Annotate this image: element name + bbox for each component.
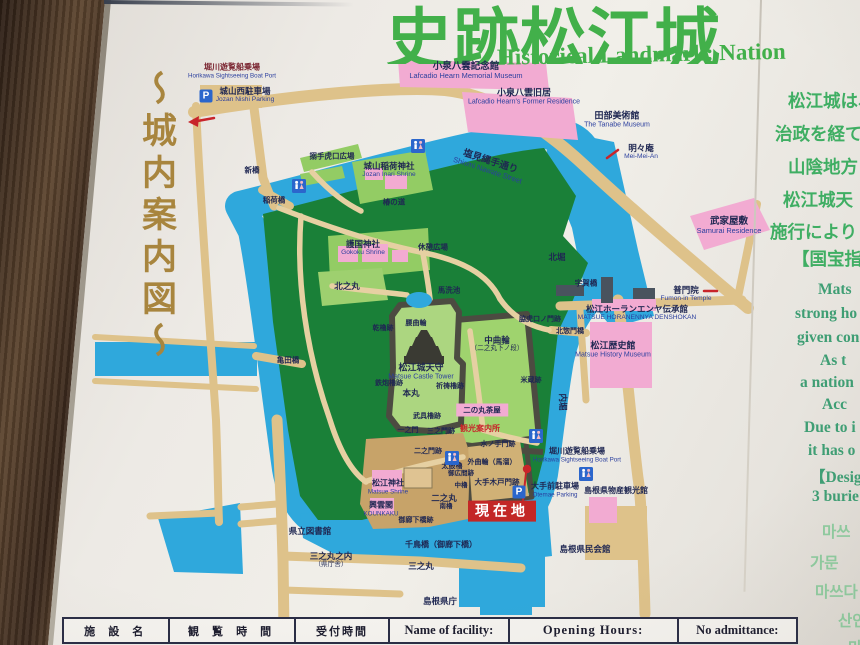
- map-label-text: 武具櫓跡: [413, 413, 441, 421]
- map-label-subtext: Mei-Mei-An: [624, 153, 658, 161]
- info-en-line-7: it has o: [808, 442, 855, 460]
- table-header-hours-en: Opening Hours:: [508, 619, 677, 642]
- info-en-line-6: Due to i: [804, 419, 856, 437]
- map-label: 二の丸茶屋: [456, 404, 508, 417]
- map-label: 城山稲荷神社Jozan Inari Shrine: [362, 161, 415, 179]
- info-en-line-0: Mats: [818, 281, 852, 299]
- map-label: 武家屋敷Samurai Residence: [697, 216, 762, 236]
- map-label-text: 乾櫓跡: [373, 325, 394, 333]
- map-label-text: 明々庵: [624, 143, 658, 153]
- map-label-subtext: Horikawa Sightseeing Boat Port: [533, 456, 621, 463]
- map-label: 本丸: [402, 388, 419, 398]
- map-label-text: 城山稲荷神社: [362, 161, 415, 171]
- info-en-line-4: a nation: [800, 374, 854, 392]
- map-label-text: 亀田橋: [277, 356, 300, 365]
- map-label-text: 護国神社: [341, 239, 385, 249]
- map-label: 脇虎口ノ門跡: [519, 316, 561, 324]
- map-label-text: 鉄炮櫓跡: [375, 380, 403, 388]
- wc-icon: [411, 139, 425, 153]
- map-label: 北惣門橋: [556, 328, 584, 336]
- map-label: 亀田橋: [277, 356, 300, 365]
- map-label: 城山西駐車場Jozan Nishi Parking: [216, 86, 275, 104]
- map-label-text: 県立図書館: [289, 526, 332, 536]
- map-label: 松江ホーランエンヤ伝承館MATSUE HORANENNYA DENSHOKAN: [578, 304, 697, 322]
- map-label-text: 三之丸之内: [310, 551, 353, 561]
- map-label: 二之丸: [431, 493, 457, 503]
- map-label-text: 中曲輪: [471, 335, 524, 345]
- sign-board: 堀川遊覧船乗場Horikawa Sightseeing Boat Port城山西…: [0, 0, 860, 645]
- map-label-subtext: Lafcadio Hearn's Former Residence: [468, 98, 580, 106]
- map-label-subtext: Lafcadio Hearn Memorial Museum: [409, 72, 522, 81]
- table-header-facility-en: Name of facility:: [388, 619, 507, 642]
- map-label-subtext: Otemae Parking: [531, 491, 579, 498]
- info-en-line-2: given con: [797, 329, 859, 347]
- table-header-hours-jp: 観 覧 時 間: [168, 619, 293, 642]
- map-label-text: 二之丸: [431, 493, 457, 503]
- current-location-badge: 現在地: [468, 501, 536, 522]
- map-label: 中曲輪（二之丸下ノ段）: [471, 335, 524, 353]
- map-label: 大手前駐車場Otemae Parking: [531, 481, 579, 498]
- map-label-text: 城山西駐車場: [216, 86, 275, 96]
- map-label-text: 南櫓: [440, 503, 453, 511]
- map-label-text: 堀川遊覧船乗場: [533, 446, 621, 456]
- map-label-text: 田部美術館: [584, 110, 650, 121]
- map-label: 観光案内所: [460, 424, 500, 434]
- map-label: 松江歴史館Matsue History Museum: [575, 340, 651, 359]
- map-label-text: 松江城天守: [388, 362, 453, 373]
- map-label-subtext: Samurai Residence: [697, 227, 762, 236]
- map-label-subtext: Fumon-in Temple: [660, 295, 711, 303]
- wc-icon: [579, 467, 593, 481]
- map-label: 休憩広場: [418, 243, 448, 252]
- parking-icon: P: [513, 486, 526, 499]
- map-label-text: 二の丸茶屋: [463, 406, 501, 415]
- map-label: 小泉八雲記念館Lafcadio Hearn Memorial Museum: [409, 61, 522, 81]
- map-label-text: 島根県民会館: [559, 544, 610, 554]
- map-label: 腰曲輪: [406, 320, 427, 328]
- map-label: 三之丸之内（県庁舎）: [310, 551, 353, 569]
- label-matsue-castle-tower: 松江城天守Matsue Castle Tower: [388, 362, 453, 381]
- parking-icon: P: [200, 90, 213, 103]
- map-label: 乾櫓跡: [373, 325, 394, 333]
- table-header-reception-jp: 受付時間: [294, 619, 388, 642]
- map-label: 千鳥橋（御廊下橋）: [405, 540, 477, 550]
- map-label-subtext: Gokoku Shrine: [341, 249, 385, 257]
- map-label-text: 脇虎口ノ門跡: [519, 316, 561, 324]
- map-label-subtext: Horikawa Sightseeing Boat Port: [188, 72, 276, 79]
- info-jp-line-4: 施行により: [770, 219, 857, 244]
- map-label: 祈祷櫓跡: [436, 383, 464, 391]
- map-label-text: 千鳥橋（御廊下橋）: [405, 540, 477, 550]
- map-label: 北之丸: [334, 281, 360, 291]
- map-label: 搦手虎口広場: [310, 152, 355, 161]
- map-label-text: 松江ホーランエンヤ伝承館: [578, 304, 697, 314]
- info-jp-line-2: 山陰地方: [788, 154, 858, 179]
- info-jp-line-0: 松江城は、: [788, 88, 860, 113]
- info-en-line-3: As t: [820, 352, 846, 370]
- map-label: 御廊下橋跡: [399, 517, 434, 525]
- wc-icon: [292, 179, 306, 193]
- map-label-text: 松江神社: [368, 478, 408, 488]
- map-label: 二之門跡: [414, 448, 442, 456]
- map-label-text: 椿の道: [383, 198, 406, 207]
- map-label: 堀川遊覧船乗場Horikawa Sightseeing Boat Port: [188, 62, 276, 79]
- red-arrow-west: [188, 116, 214, 127]
- map-label-text: 御廊下橋跡: [399, 517, 434, 525]
- map-label: 明々庵Mei-Mei-An: [624, 143, 658, 161]
- info-en-line-9: 3 burie: [812, 488, 859, 506]
- info-en-line-1: strong ho: [795, 305, 857, 323]
- ninomaru-building: [404, 468, 432, 488]
- map-label-text: 小泉八雲旧居: [468, 87, 580, 98]
- map-label-text: 一之門: [398, 427, 419, 435]
- map-label-text: 新橋: [245, 166, 260, 175]
- map-label-subtext: KOUNKAKU: [364, 510, 399, 517]
- info-jp-line-5: 【国宝指: [792, 246, 860, 271]
- map-label: 南櫓: [440, 503, 453, 511]
- info-kr-line-2: 마쓰다: [815, 580, 858, 602]
- map-label-text: 御広間跡: [448, 470, 474, 478]
- map-label-text: 観光案内所: [460, 424, 500, 434]
- map-label: 三之門跡: [427, 428, 455, 436]
- map-label-text: 搦手虎口広場: [310, 152, 355, 161]
- map-label-subtext: Jozan Inari Shrine: [362, 171, 415, 179]
- map-label: 興雲閣KOUNKAKU: [364, 500, 399, 517]
- map-label: 水ノ手門跡: [481, 441, 516, 449]
- map-label: 米蔵跡: [521, 377, 542, 385]
- map-label: 御広間跡: [448, 470, 474, 478]
- map-label: 椿の道: [383, 198, 406, 207]
- map-label: 田部美術館The Tanabe Museum: [584, 110, 650, 129]
- map-label-text: 堀川遊覧船乗場: [188, 62, 276, 72]
- map-label: 鉄炮櫓跡: [375, 380, 403, 388]
- map-label: 松江神社Matsue Shrine: [368, 478, 408, 495]
- map-label-subtext: The Tanabe Museum: [584, 121, 650, 129]
- map-label: 新橋: [245, 166, 260, 175]
- map-label-text: 祈祷櫓跡: [436, 383, 464, 391]
- map-label: 島根県民会館: [559, 544, 610, 554]
- map-label-subtext: Matsue Shrine: [368, 488, 408, 495]
- map-label-text: 中櫓: [455, 482, 468, 490]
- map-label: 中櫓: [455, 482, 468, 490]
- map-label-text: 外曲輪（馬溜）: [468, 459, 517, 467]
- map-label: 普門院Fumon-in Temple: [660, 285, 711, 303]
- horse-washing-pond: [406, 292, 432, 308]
- wc-icon: [529, 429, 543, 443]
- facility-table: 施 設 名 観 覧 時 間 受付時間 Name of facility: Ope…: [62, 617, 798, 644]
- info-kr-line-3: 산인: [838, 609, 860, 631]
- map-label-text: 休憩広場: [418, 243, 448, 252]
- map-label-text: 興雲閣: [364, 500, 399, 510]
- info-en-line-8: 【Desig: [810, 465, 860, 487]
- map-label-text: 三之丸: [408, 561, 434, 571]
- map-label: 稲荷橋: [263, 196, 286, 205]
- map-label-text: 馬洗池: [438, 286, 461, 295]
- table-header-admittance-en: No admittance:: [677, 619, 796, 642]
- map-label-subtext: MATSUE HORANENNYA DENSHOKAN: [578, 314, 697, 322]
- info-jp-line-1: 治政を経て: [775, 121, 860, 146]
- map-label-text: 稲荷橋: [263, 196, 286, 205]
- map-label: 内堀: [558, 393, 568, 410]
- map-area: 堀川遊覧船乗場Horikawa Sightseeing Boat Port城山西…: [0, 0, 860, 645]
- map-label: 島根県庁: [423, 596, 457, 606]
- map-label: 小泉八雲旧居Lafcadio Hearn's Former Residence: [468, 87, 580, 106]
- map-label-text: 北堀: [548, 252, 565, 262]
- map-label: 三之丸: [408, 561, 434, 571]
- map-label-text: 北惣門橋: [556, 328, 584, 336]
- map-label: 宇賀橋: [575, 279, 598, 288]
- map-label-text: 現在地: [475, 503, 529, 520]
- map-label-text: 腰曲輪: [406, 320, 427, 328]
- map-label: 島根県物産観光館: [584, 486, 648, 496]
- map-label-text: 松江歴史館: [575, 340, 651, 351]
- map-label-text: 大手前駐車場: [531, 481, 579, 491]
- map-label-text: 内堀: [558, 393, 568, 410]
- map-label-text: 北之丸: [334, 281, 360, 291]
- side-title-calligraphy: 〜城内案内図〜: [131, 70, 182, 400]
- map-label-text: 三之門跡: [427, 428, 455, 436]
- map-label-text: 二之門跡: [414, 448, 442, 456]
- map-label: 堀川遊覧船乗場Horikawa Sightseeing Boat Port: [533, 446, 621, 463]
- map-label: 県立図書館: [289, 526, 332, 536]
- map-label: 北堀: [548, 252, 565, 262]
- map-label: 馬洗池: [438, 286, 461, 295]
- map-label-subtext: Matsue History Museum: [575, 351, 651, 359]
- map-label-text: 本丸: [402, 388, 419, 398]
- map-label-text: 島根県庁: [423, 596, 457, 606]
- info-kr-line-4: 마: [848, 636, 860, 645]
- map-label: 護国神社Gokoku Shrine: [341, 239, 385, 257]
- map-label-subtext: Jozan Nishi Parking: [216, 96, 275, 104]
- info-kr-line-1: 가문: [810, 551, 839, 573]
- table-header-facility-jp: 施 設 名: [64, 619, 168, 642]
- map-label-text: 普門院: [660, 285, 711, 295]
- info-en-line-5: Acc: [822, 396, 847, 414]
- map-label: 武具櫓跡: [413, 413, 441, 421]
- map-label-subtext: （二之丸下ノ段）: [471, 345, 524, 353]
- map-label-text: 水ノ手門跡: [481, 441, 516, 449]
- map-label-subtext: （県庁舎）: [310, 561, 353, 569]
- map-label-text: 島根県物産観光館: [584, 486, 648, 496]
- map-label-text: 米蔵跡: [521, 377, 542, 385]
- map-label: 一之門: [398, 427, 419, 435]
- wc-icon: [445, 451, 459, 465]
- map-label-text: 宇賀橋: [575, 279, 598, 288]
- map-label: 外曲輪（馬溜）: [468, 459, 517, 467]
- info-jp-line-3: 松江城天: [783, 187, 853, 212]
- info-kr-line-0: 마쓰: [822, 520, 851, 542]
